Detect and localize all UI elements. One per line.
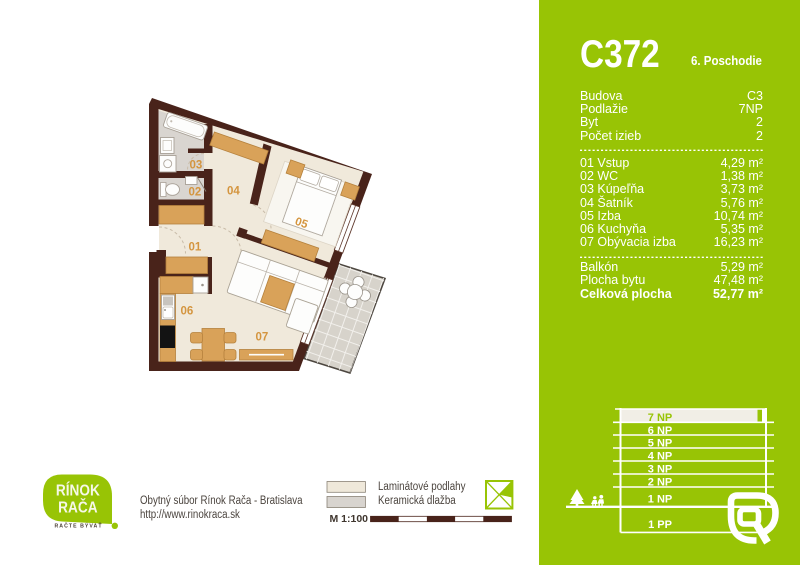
svg-text:1 NP: 1 NP xyxy=(648,494,672,506)
svg-text:RAČTE BÝVAŤ: RAČTE BÝVAŤ xyxy=(55,522,103,530)
svg-text:4 NP: 4 NP xyxy=(648,451,672,463)
svg-text:07: 07 xyxy=(256,332,269,344)
svg-text:7 NP: 7 NP xyxy=(648,412,672,424)
svg-text:02: 02 xyxy=(189,187,202,199)
svg-text:5 NP: 5 NP xyxy=(648,438,672,450)
svg-text:6 NP: 6 NP xyxy=(648,425,672,437)
svg-text:2 NP: 2 NP xyxy=(648,477,672,489)
svg-text:RAČA: RAČA xyxy=(58,498,98,517)
svg-text:3 NP: 3 NP xyxy=(648,464,672,476)
svg-text:RÍNOK: RÍNOK xyxy=(56,482,100,500)
svg-text:1 PP: 1 PP xyxy=(648,519,672,531)
svg-text:01: 01 xyxy=(189,242,202,254)
svg-text:04: 04 xyxy=(227,186,240,198)
svg-text:03: 03 xyxy=(190,160,203,172)
svg-text:06: 06 xyxy=(181,306,194,318)
